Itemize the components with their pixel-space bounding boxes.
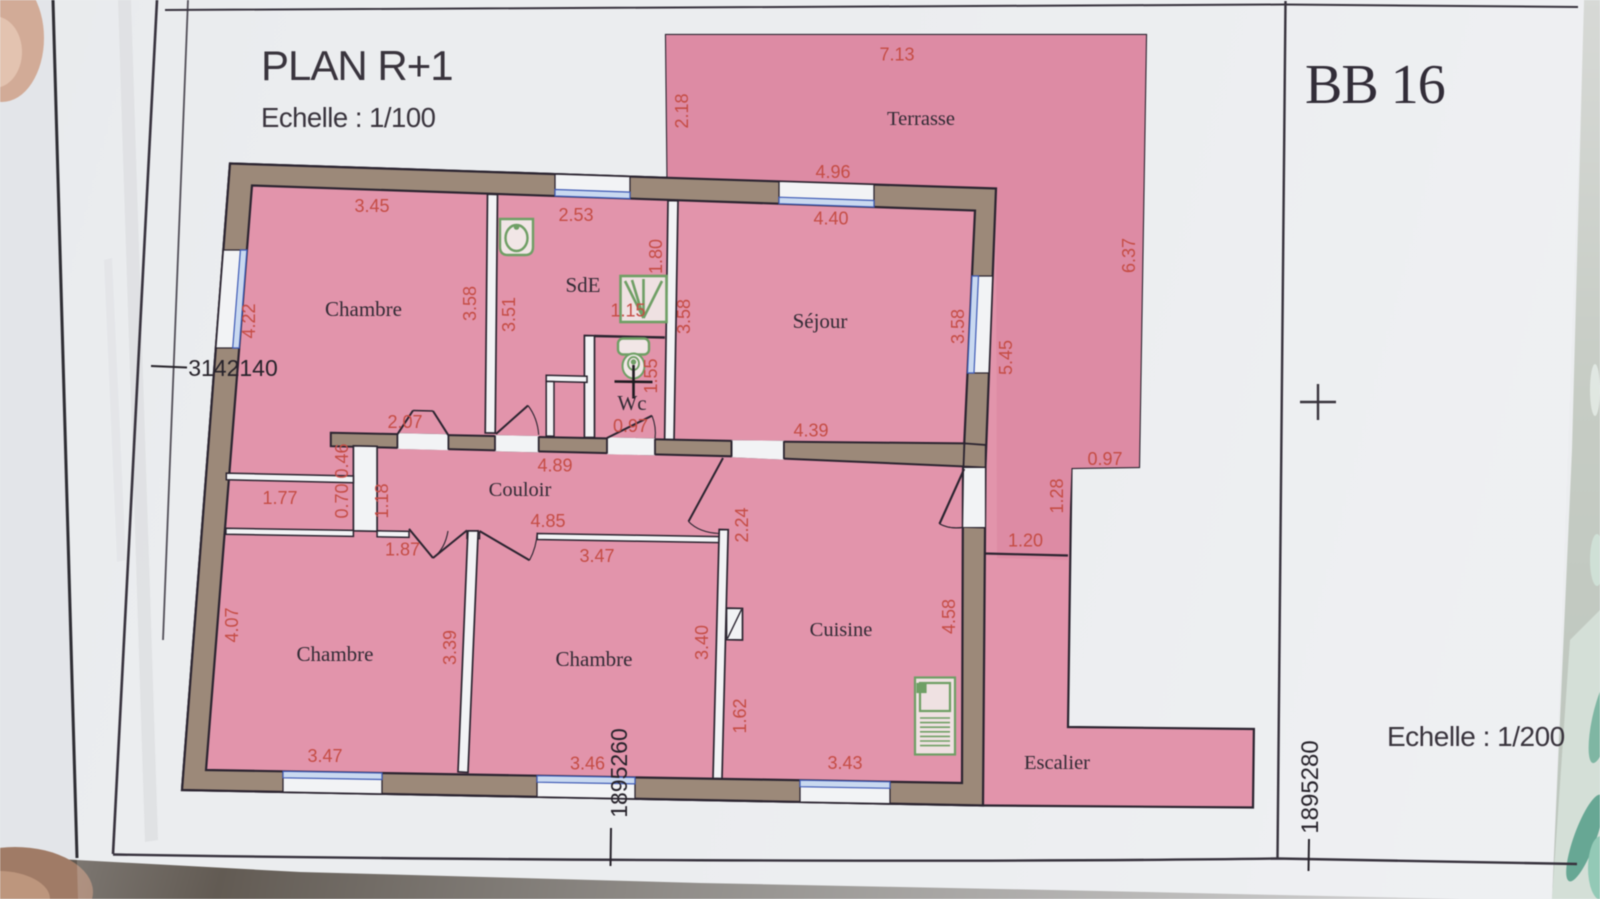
svg-text:1895260: 1895260 bbox=[606, 728, 632, 818]
svg-text:SdE: SdE bbox=[565, 273, 600, 297]
svg-text:1.20: 1.20 bbox=[1008, 531, 1043, 551]
svg-text:3.58: 3.58 bbox=[948, 309, 968, 344]
svg-text:4.07: 4.07 bbox=[222, 607, 242, 642]
svg-text:3.43: 3.43 bbox=[827, 753, 862, 773]
svg-text:3.58: 3.58 bbox=[674, 299, 694, 334]
svg-text:Chambre: Chambre bbox=[325, 297, 402, 321]
svg-text:BB 16: BB 16 bbox=[1305, 54, 1445, 116]
svg-text:3.47: 3.47 bbox=[307, 746, 342, 766]
svg-text:0.46: 0.46 bbox=[332, 443, 352, 478]
svg-text:1.80: 1.80 bbox=[646, 239, 666, 274]
svg-text:Wc: Wc bbox=[617, 391, 646, 415]
svg-text:1.18: 1.18 bbox=[372, 483, 392, 518]
svg-text:1.15: 1.15 bbox=[610, 301, 645, 321]
svg-text:2.24: 2.24 bbox=[732, 507, 752, 542]
svg-text:4.40: 4.40 bbox=[813, 209, 848, 229]
svg-text:3142140: 3142140 bbox=[188, 355, 278, 381]
svg-text:7.13: 7.13 bbox=[879, 45, 914, 65]
svg-text:Chambre: Chambre bbox=[297, 642, 374, 666]
svg-text:Terrasse: Terrasse bbox=[887, 108, 955, 130]
svg-text:4.85: 4.85 bbox=[530, 511, 565, 531]
svg-text:0.97: 0.97 bbox=[613, 416, 648, 436]
svg-text:Couloir: Couloir bbox=[489, 479, 552, 501]
svg-text:3.58: 3.58 bbox=[460, 286, 480, 321]
svg-text:Séjour: Séjour bbox=[793, 309, 848, 333]
svg-text:0.70: 0.70 bbox=[332, 483, 352, 518]
svg-text:4.96: 4.96 bbox=[815, 162, 850, 182]
svg-text:4.89: 4.89 bbox=[537, 456, 572, 476]
svg-text:3.39: 3.39 bbox=[440, 630, 460, 665]
svg-text:Escalier: Escalier bbox=[1024, 752, 1090, 774]
svg-text:1.62: 1.62 bbox=[730, 698, 750, 733]
svg-text:Echelle : 1/100: Echelle : 1/100 bbox=[261, 102, 436, 133]
svg-text:3.47: 3.47 bbox=[579, 546, 614, 566]
svg-text:2.53: 2.53 bbox=[558, 205, 593, 225]
svg-text:Echelle : 1/200: Echelle : 1/200 bbox=[1387, 721, 1565, 752]
svg-text:2.07: 2.07 bbox=[387, 412, 422, 432]
svg-text:5.45: 5.45 bbox=[996, 340, 1016, 375]
svg-text:4.22: 4.22 bbox=[239, 303, 259, 338]
svg-text:3.51: 3.51 bbox=[499, 297, 519, 332]
svg-text:6.37: 6.37 bbox=[1119, 238, 1139, 273]
svg-text:1.28: 1.28 bbox=[1047, 478, 1067, 513]
svg-text:1895280: 1895280 bbox=[1297, 740, 1324, 833]
svg-text:PLAN R+1: PLAN R+1 bbox=[261, 42, 453, 89]
svg-text:4.58: 4.58 bbox=[939, 599, 959, 634]
svg-text:3.40: 3.40 bbox=[692, 625, 712, 660]
svg-text:Cuisine: Cuisine bbox=[810, 619, 873, 641]
svg-text:2.18: 2.18 bbox=[672, 93, 692, 128]
svg-text:3.45: 3.45 bbox=[354, 196, 389, 216]
svg-text:3.46: 3.46 bbox=[570, 754, 605, 774]
svg-text:1.77: 1.77 bbox=[262, 488, 297, 508]
svg-text:1.55: 1.55 bbox=[641, 358, 661, 393]
svg-text:4.39: 4.39 bbox=[793, 421, 828, 441]
svg-text:0.97: 0.97 bbox=[1087, 449, 1122, 469]
svg-text:Chambre: Chambre bbox=[556, 647, 633, 671]
svg-text:1.87: 1.87 bbox=[385, 540, 420, 560]
